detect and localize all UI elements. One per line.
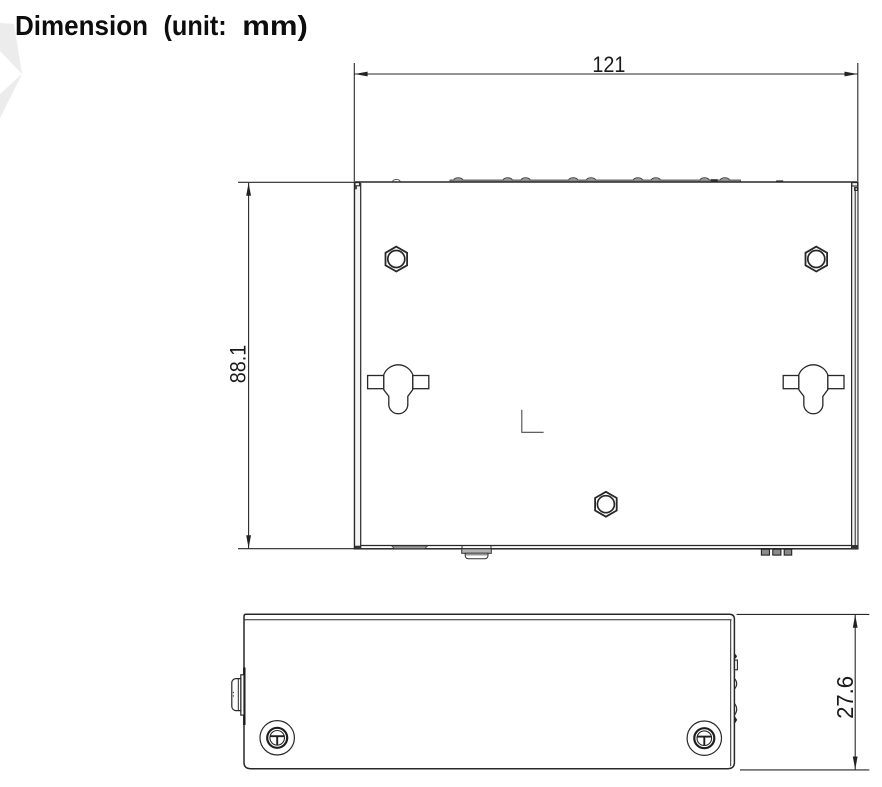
svg-text:27.6: 27.6 [832,676,858,719]
svg-text:mm): mm) [242,10,308,41]
svg-text:Dimension: Dimension [15,10,148,41]
svg-text:121: 121 [592,52,625,77]
svg-text:(unit:: (unit: [164,10,227,41]
svg-text:88.1: 88.1 [226,345,251,384]
